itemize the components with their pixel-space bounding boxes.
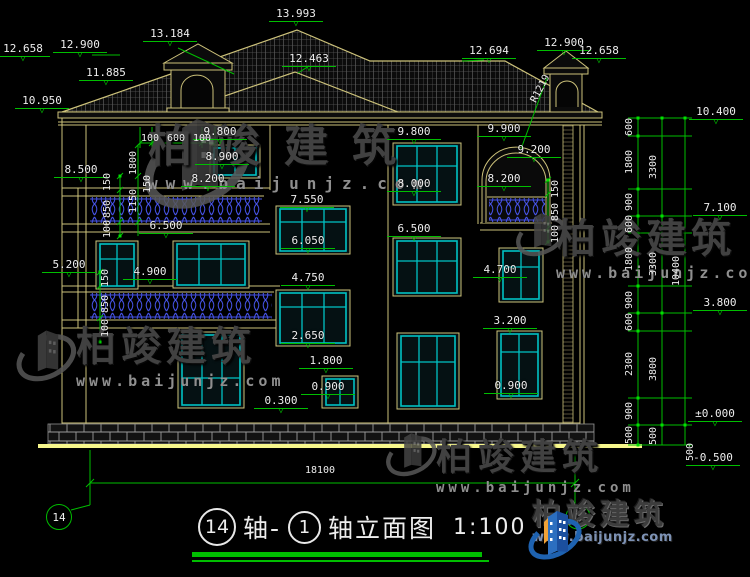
level-triangle-icon: ▽ <box>305 248 310 254</box>
level-triangle-icon: ▽ <box>147 279 152 285</box>
brand-logo-icon <box>528 498 586 564</box>
dimension-label: 100 <box>193 134 211 144</box>
title-scale: 1:100 <box>453 515 526 540</box>
dimension-label: R1219 <box>530 73 553 104</box>
level-marker: 4.750▽ <box>281 272 335 291</box>
level-marker: 0.900▽ <box>484 380 538 399</box>
level-triangle-icon: ▽ <box>497 277 502 283</box>
level-triangle-icon: ▽ <box>66 272 71 278</box>
title-joiner: 轴- <box>243 509 281 545</box>
level-triangle-icon: ▽ <box>501 186 506 192</box>
level-triangle-icon: ▽ <box>217 139 222 145</box>
title-underline <box>192 552 482 557</box>
title-name: 轴立面图 <box>328 509 436 545</box>
level-triangle-icon: ▽ <box>306 66 311 72</box>
level-triangle-icon: ▽ <box>103 80 108 86</box>
level-triangle-icon: ▽ <box>325 394 330 400</box>
level-marker: 0.300▽ <box>254 395 308 414</box>
level-marker: 4.900▽ <box>123 266 177 285</box>
level-triangle-icon: ▽ <box>710 465 715 471</box>
level-triangle-icon: ▽ <box>163 233 168 239</box>
level-marker: ±0.000▽ <box>688 408 742 427</box>
dimension-label: 100 <box>551 225 561 243</box>
dimension-label: 900 <box>625 193 635 211</box>
level-triangle-icon: ▽ <box>561 50 566 56</box>
level-triangle-icon: ▽ <box>305 285 310 291</box>
level-triangle-icon: ▽ <box>531 157 536 163</box>
level-triangle-icon: ▽ <box>713 119 718 125</box>
level-marker: 3.800▽ <box>693 297 747 316</box>
level-marker: 13.993▽ <box>269 8 323 27</box>
dimension-label: 150 <box>101 269 111 287</box>
dimension-label: 600 <box>625 215 635 233</box>
title-axis-left: 14 <box>198 508 236 546</box>
dimension-label: 1800 <box>129 151 139 175</box>
level-marker: 1.800▽ <box>299 355 353 374</box>
level-triangle-icon: ▽ <box>278 408 283 414</box>
level-marker: 8.900▽ <box>195 151 249 170</box>
dimension-label: 150 <box>143 175 153 193</box>
level-triangle-icon: ▽ <box>596 58 601 64</box>
level-triangle-icon: ▽ <box>486 58 491 64</box>
dimension-label: 3300 <box>649 252 659 276</box>
level-marker: 9.200▽ <box>507 144 561 163</box>
level-triangle-icon: ▽ <box>507 328 512 334</box>
dimension-label: 900 <box>625 402 635 420</box>
level-triangle-icon: ▽ <box>411 236 416 242</box>
dimension-label: 600 <box>167 134 185 144</box>
cad-canvas: 柏竣建筑www.baijunjz.com柏竣建筑www.baijunjz.com… <box>0 0 750 577</box>
level-marker: 8.500▽ <box>54 164 108 183</box>
level-marker: 3.200▽ <box>483 315 537 334</box>
dimension-label: 850 <box>551 203 561 221</box>
dimension-label: 600 <box>625 313 635 331</box>
dimension-label: 10400 <box>672 256 682 286</box>
level-marker: 9.900▽ <box>477 123 531 142</box>
level-marker: 4.700▽ <box>473 264 527 283</box>
title-axis-right: 1 <box>288 511 321 544</box>
dimension-label: 500 <box>686 443 696 461</box>
dimension-label: 18100 <box>305 466 335 476</box>
level-marker: 7.550▽ <box>280 194 334 213</box>
level-triangle-icon: ▽ <box>304 207 309 213</box>
level-triangle-icon: ▽ <box>717 310 722 316</box>
dimension-label: 500 <box>649 427 659 445</box>
drawing-title: 14 轴- 1 轴立面图 1:100 <box>198 508 526 546</box>
level-marker: 2.650▽ <box>281 330 335 349</box>
level-marker: 11.885▽ <box>79 67 133 86</box>
level-marker: 10.950▽ <box>15 95 69 114</box>
level-marker: 8.200▽ <box>181 173 235 192</box>
level-marker: 12.658▽ <box>572 45 626 64</box>
level-marker: 5.200▽ <box>42 259 96 278</box>
brand-logo: 柏竣建筑 www.baijunjz.com <box>528 498 673 545</box>
level-triangle-icon: ▽ <box>305 343 310 349</box>
level-marker: 8.000▽ <box>387 178 441 197</box>
level-triangle-icon: ▽ <box>20 56 25 62</box>
level-marker: 6.500▽ <box>387 223 441 242</box>
level-marker: 8.200▽ <box>477 173 531 192</box>
dimension-label: 600 <box>625 118 635 136</box>
dimension-label: 3800 <box>649 357 659 381</box>
dimension-label: 2300 <box>625 352 635 376</box>
level-marker: 12.658▽ <box>0 43 50 62</box>
level-triangle-icon: ▽ <box>293 21 298 27</box>
level-marker: 9.800▽ <box>387 126 441 145</box>
level-triangle-icon: ▽ <box>205 186 210 192</box>
level-triangle-icon: ▽ <box>501 136 506 142</box>
dimension-label: 150 <box>103 173 113 191</box>
annotation-layer: 13.993▽13.184▽12.900▽12.658▽11.885▽10.95… <box>0 0 750 577</box>
level-marker: 12.694▽ <box>462 45 516 64</box>
level-triangle-icon: ▽ <box>323 368 328 374</box>
level-triangle-icon: ▽ <box>712 421 717 427</box>
dimension-label: 100 <box>141 134 159 144</box>
level-marker: 6.500▽ <box>139 220 193 239</box>
level-triangle-icon: ▽ <box>219 164 224 170</box>
level-triangle-icon: ▽ <box>411 191 416 197</box>
dimension-label: 900 <box>625 291 635 309</box>
dimension-label: 850 <box>101 295 111 313</box>
level-marker: 7.100▽ <box>693 202 747 221</box>
dimension-label: 3300 <box>649 155 659 179</box>
level-triangle-icon: ▽ <box>411 139 416 145</box>
level-triangle-icon: ▽ <box>717 215 722 221</box>
level-triangle-icon: ▽ <box>78 177 83 183</box>
level-marker: 0.900▽ <box>301 381 355 400</box>
level-marker: 10.400▽ <box>689 106 743 125</box>
dimension-label: 1800 <box>625 247 635 271</box>
dimension-label: 150 <box>551 180 561 198</box>
level-marker: 13.184▽ <box>143 28 197 47</box>
dimension-label: 100 <box>101 319 111 337</box>
level-marker: 12.900▽ <box>53 39 107 58</box>
axis-bubble-left: 14 <box>46 504 72 530</box>
dimension-label: 850 <box>103 200 113 218</box>
level-triangle-icon: ▽ <box>77 52 82 58</box>
level-triangle-icon: ▽ <box>39 108 44 114</box>
level-marker: 12.463▽ <box>282 53 336 72</box>
level-marker: 6.050▽ <box>281 235 335 254</box>
title-underline-thin <box>192 560 489 562</box>
level-triangle-icon: ▽ <box>508 393 513 399</box>
dimension-label: 1150 <box>129 189 139 213</box>
dimension-label: 1800 <box>625 150 635 174</box>
dimension-label: 500 <box>625 426 635 444</box>
level-triangle-icon: ▽ <box>167 41 172 47</box>
axis-number: 14 <box>52 511 65 524</box>
dimension-label: 100 <box>103 220 113 238</box>
